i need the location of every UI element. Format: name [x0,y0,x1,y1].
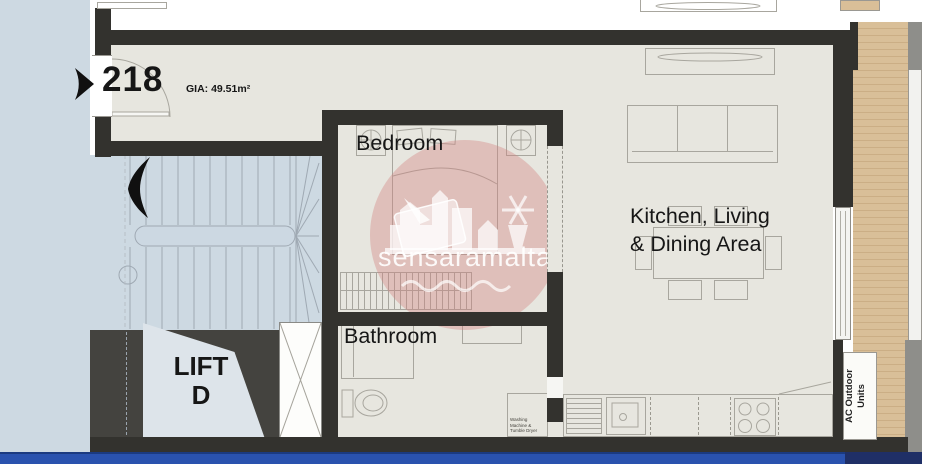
room-label-bedroom: Bedroom [356,131,443,156]
watermark-skyline-icon [370,140,560,330]
wall-top [95,30,850,45]
watermark: sensaramalta [370,140,560,330]
counter-flap-line [779,382,831,394]
room-label-bathroom: Bathroom [344,324,437,349]
entry-arrow-icon [73,66,97,104]
upper-unit-tv-unit [640,0,777,12]
wall-core-vertical [322,110,338,452]
wall-bathroom-right-lower [547,398,563,422]
entry-door-leaf [112,112,169,116]
bottom-blue-strip [0,452,922,464]
unit-number: 218 [102,60,163,100]
terrace-sliding-window [835,207,851,340]
bathroom-door-opening [547,377,563,398]
bedroom-sliding-opening [547,146,563,272]
wall-entry-bottom [95,141,338,156]
upper-unit-shelf [97,2,167,9]
room-label-kitchen-living: Kitchen, Living & Dining Area [630,203,770,258]
tv-icon [658,53,762,61]
wall-terrace-stub [850,22,858,70]
wall-bedroom-top [330,110,563,125]
watermark-waves-icon [402,282,510,291]
toilet-bowl [355,390,387,416]
wall-left-upper [95,8,111,55]
watermark-text: sensaramalta [370,242,560,273]
wall-right-lower [833,340,843,437]
bottom-navy-segment [845,452,922,464]
toilet-tank [342,390,353,417]
ac-outdoor-units-label: AC Outdoor Units [844,353,876,439]
wall-bedroom-right-upper [547,110,563,146]
wall-bathroom-right-upper [547,326,563,377]
wall-bottom [90,437,908,452]
sink-drain [620,414,627,421]
gia-label: GIA: 49.51m² [186,83,250,95]
floor-plan-canvas: LIFT D Washing Machine & Tumble Dryer [0,0,941,464]
ac-outdoor-units-box: AC Outdoor Units [843,352,877,440]
